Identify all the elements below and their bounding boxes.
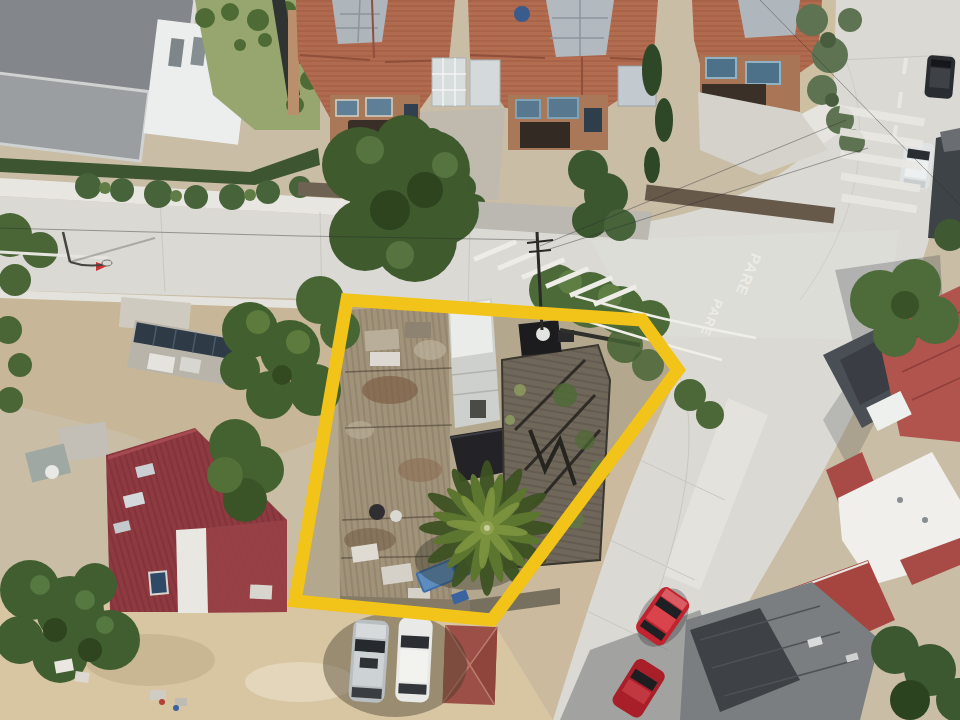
- wet-ground-shadow: [323, 613, 467, 717]
- grass-tuft: [514, 384, 526, 396]
- satellite-dish: [390, 510, 402, 522]
- suv-windshield: [401, 635, 430, 648]
- shuttered-window: [516, 100, 540, 118]
- rust-patch: [362, 376, 418, 404]
- suv-rear-window: [351, 687, 382, 699]
- roof-vent: [897, 497, 903, 503]
- white-roof-stripe: [176, 528, 208, 613]
- window: [584, 108, 602, 132]
- shuttered-window: [746, 62, 780, 84]
- dark-doorway: [470, 400, 486, 418]
- suv-hood: [356, 623, 387, 639]
- bush: [575, 430, 595, 450]
- roof-vent: [250, 584, 273, 599]
- car-roof: [929, 67, 951, 89]
- red-roof-right-section: [206, 520, 287, 613]
- shed-roof: [405, 322, 431, 338]
- bush: [553, 383, 577, 407]
- palm-crown-center: [484, 525, 490, 531]
- glass-panel: [470, 60, 500, 106]
- shed-roof: [364, 329, 399, 351]
- bright-patch: [346, 421, 374, 439]
- suv-rear-window: [398, 683, 426, 694]
- parked-dark-car: [924, 55, 956, 99]
- parked-gray-suv: [348, 619, 390, 703]
- roadside-bush: [696, 401, 724, 429]
- blue-barrel: [514, 6, 530, 22]
- bright-patch: [414, 340, 446, 360]
- grass-tuft: [505, 415, 515, 425]
- suv-windshield: [355, 639, 386, 653]
- rust-patch: [398, 458, 442, 482]
- streetlight-lamp: [102, 260, 112, 266]
- roof-skylight: [738, 0, 800, 38]
- aerial-photo: PARE PARE: [0, 0, 960, 720]
- window: [336, 100, 358, 116]
- roof-vent: [922, 517, 928, 523]
- satellite-dish: [369, 504, 385, 520]
- suv-roof: [399, 649, 429, 682]
- shuttered-window: [706, 58, 736, 78]
- water-tank: [45, 465, 59, 479]
- roof-window: [149, 571, 168, 594]
- parked-white-suv: [395, 617, 433, 703]
- conservatory-glass-roof: [432, 58, 466, 106]
- suv-roof: [352, 651, 384, 687]
- aerial-photo-canvas: PARE PARE: [0, 0, 960, 720]
- white-shed: [370, 352, 400, 366]
- suv-sunroof: [359, 657, 378, 668]
- garage-door: [520, 122, 570, 148]
- shuttered-window: [548, 98, 578, 118]
- window: [366, 98, 392, 116]
